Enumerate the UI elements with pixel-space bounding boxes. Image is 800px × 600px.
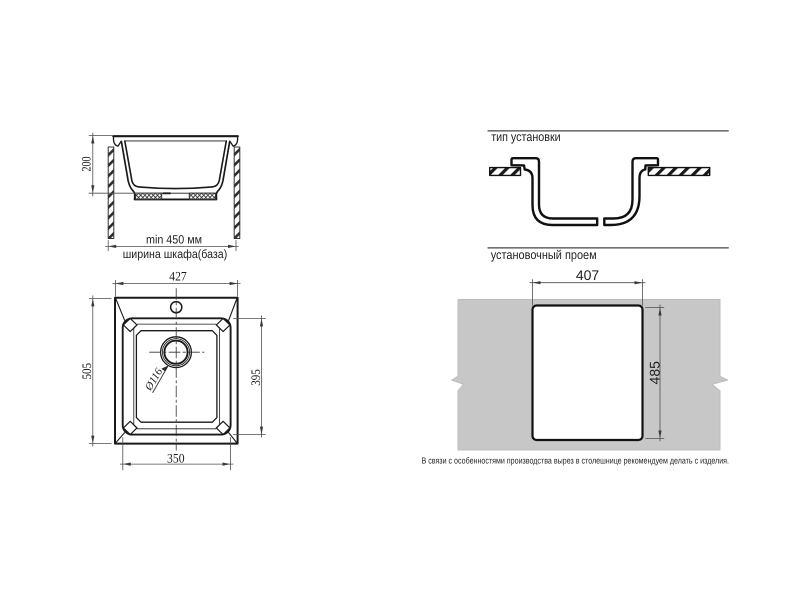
svg-text:427: 427 (169, 269, 187, 284)
svg-text:ширина шкафа(база): ширина шкафа(база) (123, 247, 228, 261)
svg-text:min 450 мм: min 450 мм (146, 232, 202, 246)
svg-text:тип установки: тип установки (491, 130, 561, 144)
svg-text:395: 395 (248, 369, 263, 386)
svg-text:установочный проем: установочный проем (491, 248, 597, 262)
svg-text:В связи с особенностями произв: В связи с особенностями производства выр… (422, 455, 730, 465)
svg-text:485: 485 (646, 361, 662, 385)
svg-text:505: 505 (79, 363, 94, 380)
svg-text:407: 407 (576, 267, 600, 283)
svg-text:350: 350 (167, 451, 185, 466)
svg-text:200: 200 (79, 157, 94, 172)
